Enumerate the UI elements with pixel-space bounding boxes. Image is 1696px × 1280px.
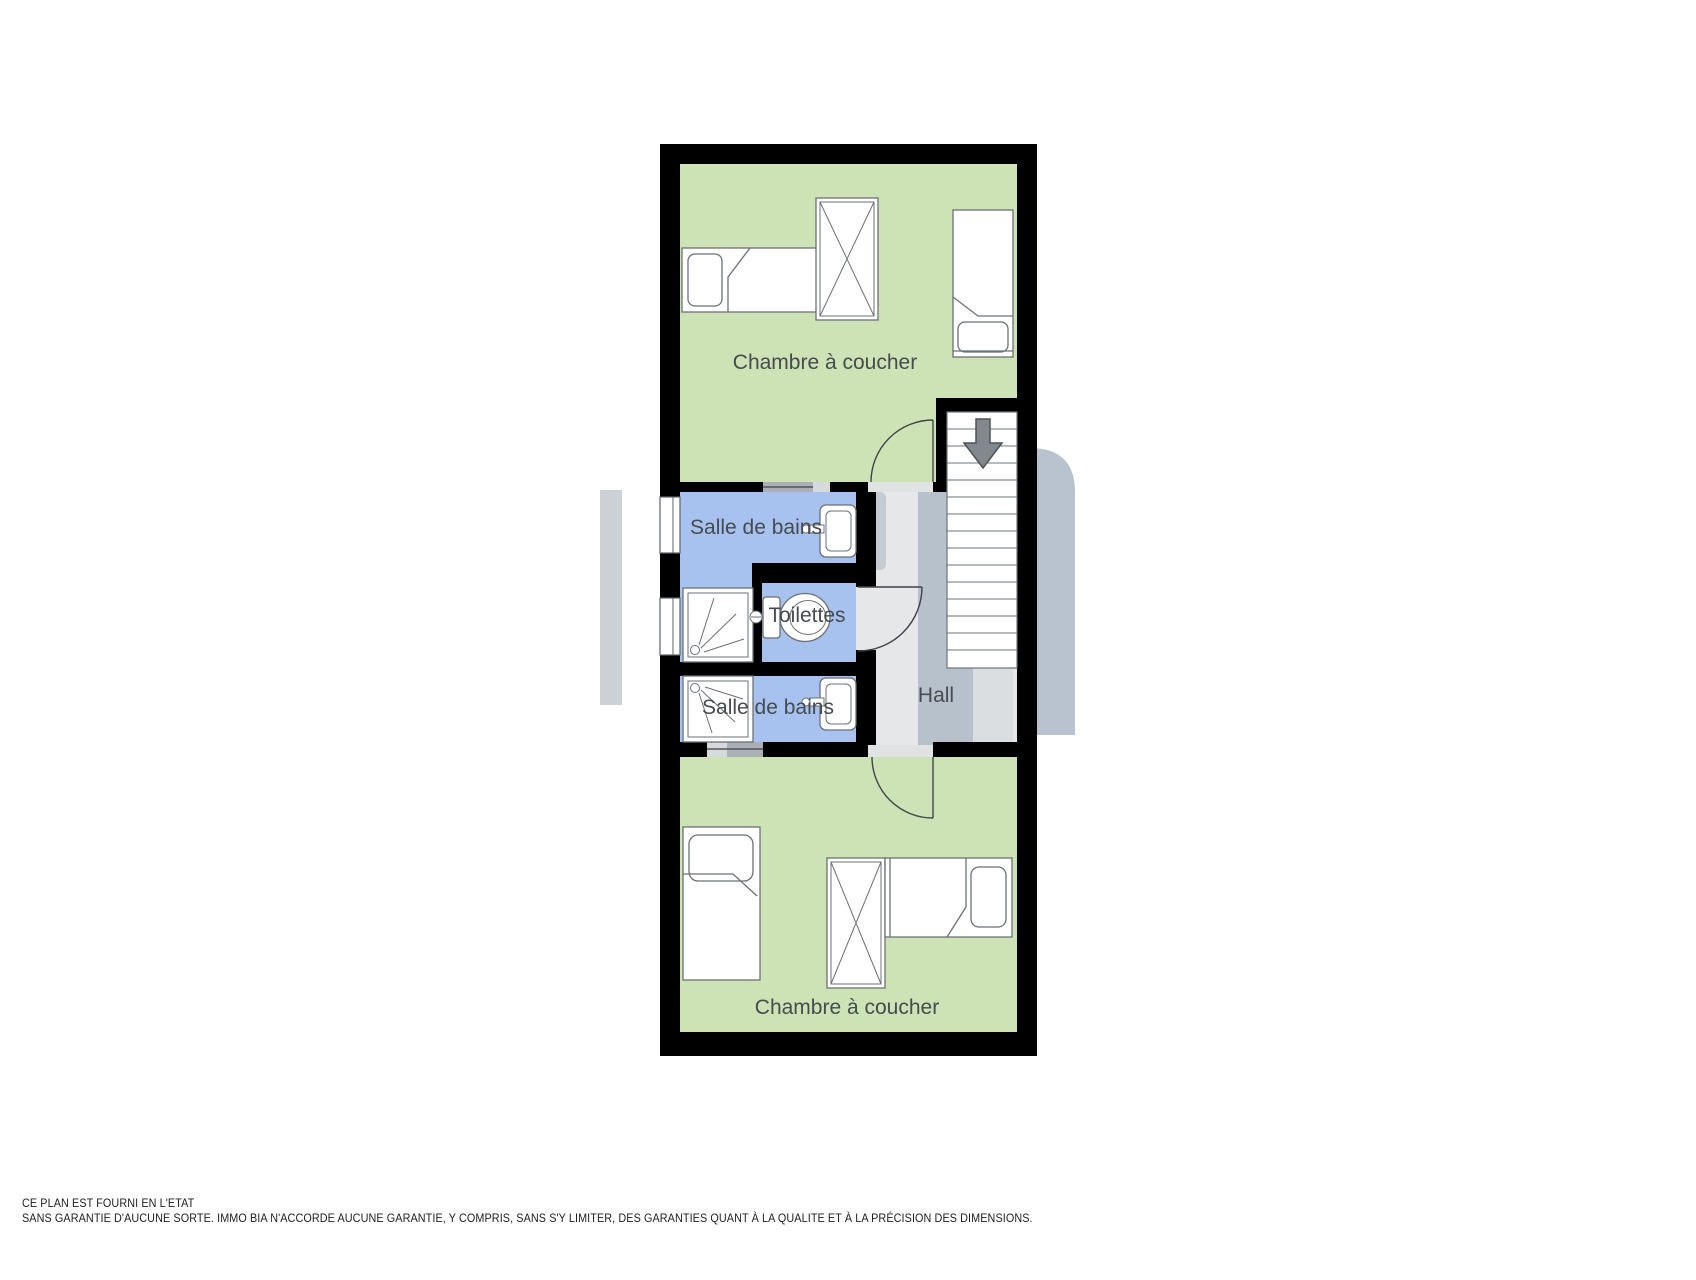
disclaimer-line-1: CE PLAN EST FOURNI EN L'ETAT	[22, 1197, 1033, 1212]
pocket-door-slab	[813, 482, 830, 492]
wall-stairs-left	[936, 398, 947, 492]
disclaimer: CE PLAN EST FOURNI EN L'ETAT SANS GARANT…	[22, 1197, 1033, 1227]
label-bedroom-top: Chambre à coucher	[733, 350, 917, 376]
exterior-shadow-left	[600, 490, 622, 705]
wall-outer-top	[660, 144, 1037, 164]
threshold-bedroom-bottom-door	[868, 745, 933, 757]
window-icon	[660, 497, 680, 553]
shower-head	[691, 684, 700, 693]
window-icon	[660, 598, 680, 655]
wall-inner	[660, 742, 707, 757]
label-toilet: Toilettes	[768, 603, 845, 629]
pillow-icon	[958, 322, 1008, 352]
pillow-icon	[971, 867, 1006, 927]
wall-inner	[660, 662, 876, 676]
wall-inner	[933, 742, 1017, 757]
wall-stairs-top	[936, 398, 1017, 412]
wall-inner	[856, 492, 876, 587]
wall-outer-right	[1017, 144, 1037, 1056]
doorway-toilet	[856, 587, 876, 650]
pillow-icon	[688, 254, 722, 306]
threshold-bedroom-top-door	[868, 482, 933, 492]
hall-shade-band	[973, 668, 1013, 745]
sink-basin	[826, 511, 851, 551]
floorplan-page: Chambre à coucher Salle de bains Toilett…	[0, 0, 1696, 1280]
staircase	[947, 412, 1017, 668]
wall-inner	[856, 650, 876, 745]
label-bathroom-top: Salle de bains	[690, 515, 822, 541]
disclaimer-line-2: SANS GARANTIE D'AUCUNE SORTE. IMMO BIA N…	[22, 1212, 1033, 1227]
label-bathroom-bottom: Salle de bains	[702, 695, 834, 721]
wall-outer-bottom	[660, 1032, 1037, 1056]
label-hall: Hall	[918, 683, 954, 709]
shower-head	[691, 646, 700, 655]
wall-inner	[763, 742, 868, 757]
floorplan-drawing	[0, 0, 1696, 1280]
label-bedroom-bottom: Chambre à coucher	[755, 995, 939, 1021]
wall-inner	[660, 482, 763, 492]
wall-inner	[830, 482, 868, 492]
